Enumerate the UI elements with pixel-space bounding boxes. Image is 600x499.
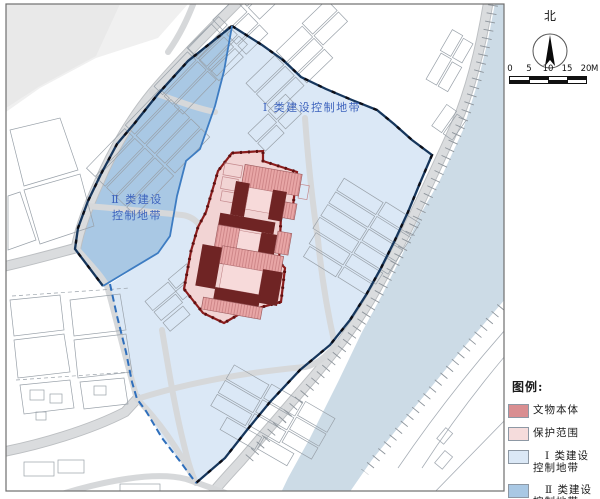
scale-bar: 0 5 10 15 20 M [507,64,599,86]
scale-tick-10: 10 [543,64,554,74]
legend-item-label: Ⅱ 类建设控制地带 [533,484,600,499]
zone-ii-swatch [508,484,529,498]
scale-bar-segments [509,76,587,84]
legend-item-label: 文物本体 [533,404,600,416]
north-label: 北 [544,9,556,23]
scale-unit: M [591,64,598,74]
scale-tick-15: 15 [562,64,573,74]
monument-swatch [508,404,529,418]
scale-tick-0: 0 [507,64,512,74]
legend: 图例: 文物本体 保护范围 Ⅰ 类建设控制地带 Ⅱ 类建设控制地带 [508,378,600,499]
legend-item-monument: 文物本体 [508,404,600,418]
scale-tick-5: 5 [526,64,531,74]
legend-item-zone-ii: Ⅱ 类建设控制地带 [508,484,600,499]
legend-title: 图例: [512,378,600,395]
zone-i-label: Ⅰ 类建设控制地带 [263,100,361,114]
scale-tick-20: 20 [581,64,592,74]
legend-item-label: 保护范围 [533,427,600,439]
heritage-protection-plan: Ⅰ 类建设控制地带 Ⅱ 类建设 控制地带 北 0 5 10 15 20 M 图例… [0,0,600,499]
legend-item-label: Ⅰ 类建设控制地带 [533,450,600,475]
zone-ii-label-line1: Ⅱ 类建设 [111,192,162,206]
zone-i-swatch [508,450,529,464]
compass-needle [545,35,555,66]
legend-item-protection-scope: 保护范围 [508,427,600,441]
protection-scope-swatch [508,427,529,441]
zone-ii-label-line2: 控制地带 [112,208,162,222]
legend-item-zone-i: Ⅰ 类建设控制地带 [508,450,600,475]
